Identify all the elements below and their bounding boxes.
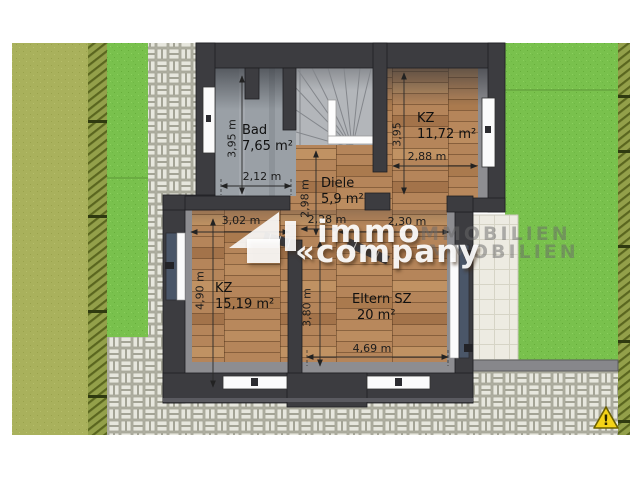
warning-mark: !: [603, 413, 609, 429]
dim-eltern-height: 3,80 m: [301, 276, 314, 340]
warning-icon: !: [592, 405, 620, 435]
room-label-diele: Diele 5,9 m²: [321, 176, 364, 208]
room-name: Diele: [321, 176, 364, 192]
room-area: 7,65 m²: [242, 139, 293, 155]
watermark-brand-bottom: «company: [295, 234, 480, 270]
room-name: KZ: [215, 281, 274, 297]
window-bottom-right: [367, 376, 430, 389]
window-kz-left: [165, 233, 185, 300]
lawn-right: [505, 43, 618, 360]
room-label-kz-left: KZ 15,19 m²: [215, 281, 274, 313]
room-area: 5,9 m²: [321, 192, 364, 208]
dim-diele-height: 2,98 m: [299, 167, 312, 231]
dim-kz-top-height: 3,95: [391, 103, 404, 167]
room-label-eltern: Eltern SZ 20 m²: [352, 292, 412, 324]
window-kz-top-right: [482, 98, 495, 167]
room-name: KZ: [417, 111, 476, 127]
floor-plan: Bad 7,65 m² KZ 11,72 m² Diele 5,9 m² KZ …: [0, 0, 640, 480]
window-bad-left: [203, 87, 215, 153]
room-area: 20 m²: [357, 308, 412, 324]
room-area: 15,19 m²: [215, 297, 274, 313]
room-area: 11,72 m²: [417, 127, 476, 143]
room-name: Bad: [242, 123, 293, 139]
staircase: [296, 68, 373, 148]
dim-kz-top-width: 2,88 m: [397, 150, 457, 163]
room-name: Eltern SZ: [352, 292, 412, 308]
wall-footer-shade: [163, 398, 473, 402]
room-label-bad: Bad 7,65 m²: [242, 123, 293, 155]
dim-bad-height: 3,95 m: [226, 107, 239, 171]
window-bottom-left: [223, 376, 287, 389]
watermark-logo-square: [247, 239, 280, 263]
room-label-kz-top: KZ 11,72 m²: [417, 111, 476, 143]
curb: [473, 360, 618, 371]
dim-eltern-width: 4,69 m: [342, 342, 402, 355]
fence-right: [618, 43, 630, 435]
dim-kz-left-height: 4,90 m: [194, 259, 207, 323]
dim-bad-width: 2,12 m: [232, 170, 292, 183]
garden-left-olive: [12, 43, 88, 435]
fence-left: [88, 43, 107, 435]
lawn-left: [107, 43, 148, 337]
